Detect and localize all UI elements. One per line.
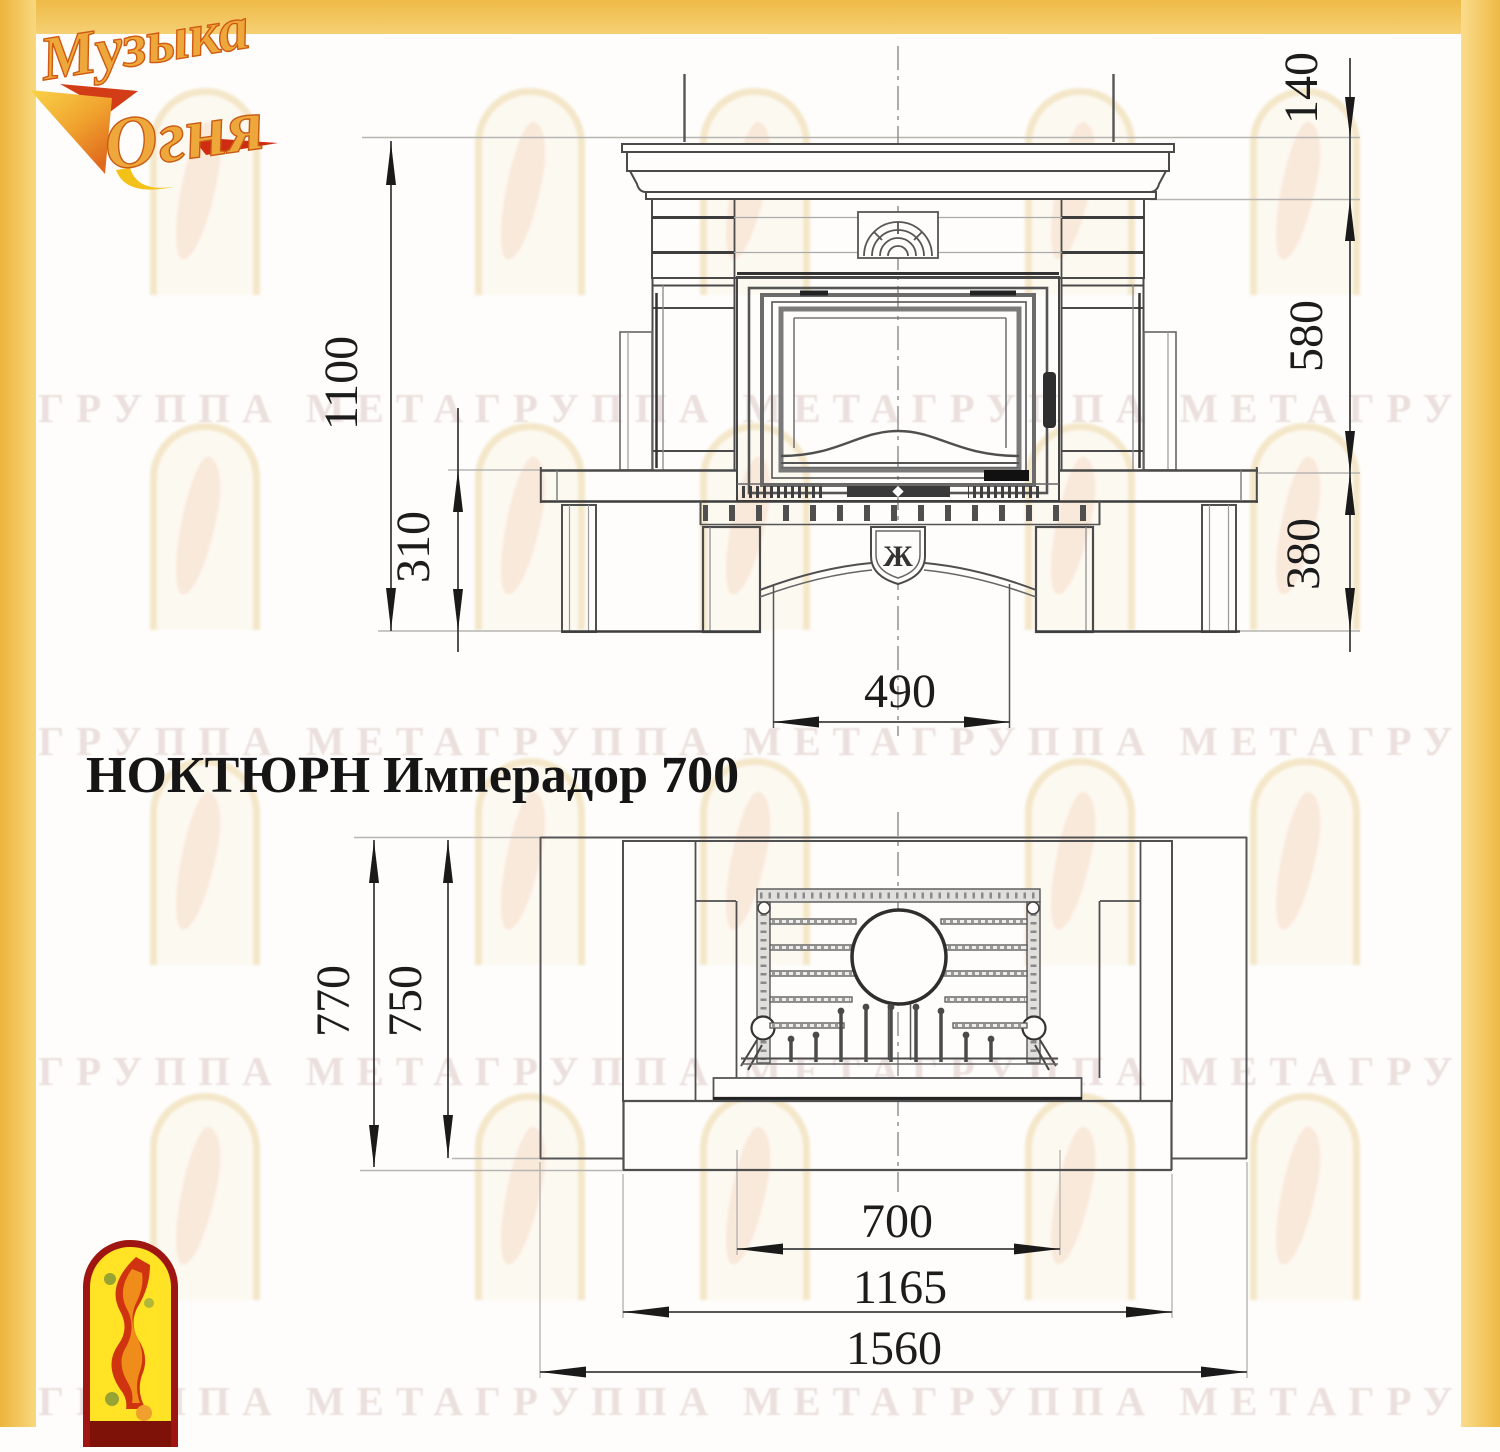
svg-text:490: 490 <box>864 665 936 718</box>
svg-text:Музыка: Музыка <box>35 2 254 94</box>
svg-text:380: 380 <box>1277 518 1330 590</box>
svg-text:1100: 1100 <box>315 336 368 430</box>
svg-text:1560: 1560 <box>846 1322 942 1375</box>
svg-text:700: 700 <box>861 1195 933 1248</box>
svg-text:580: 580 <box>1280 300 1333 372</box>
svg-text:Ж: Ж <box>883 540 913 573</box>
svg-text:140: 140 <box>1275 52 1328 124</box>
svg-text:770: 770 <box>307 965 360 1037</box>
svg-text:750: 750 <box>379 965 432 1037</box>
svg-text:1165: 1165 <box>853 1261 947 1314</box>
svg-text:310: 310 <box>387 511 440 583</box>
